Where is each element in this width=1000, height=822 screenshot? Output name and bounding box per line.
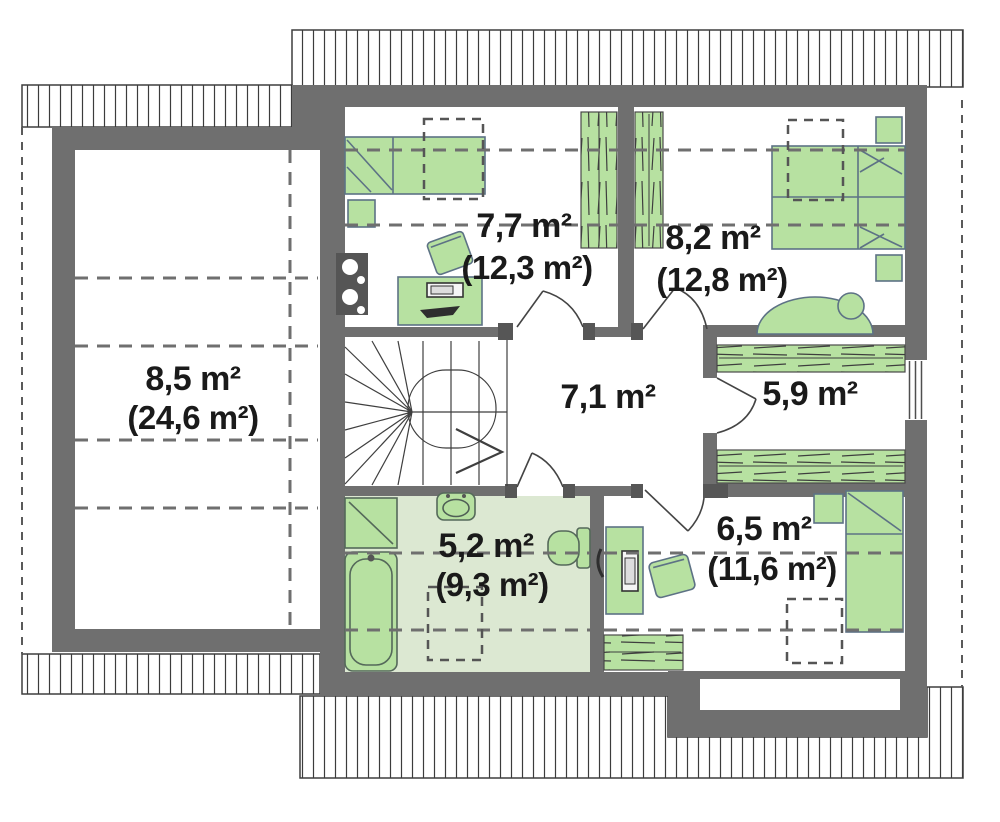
wall-attic-top [52, 127, 345, 150]
toilet [548, 528, 590, 568]
jamb [505, 484, 517, 498]
room-label: 5,2 m² [438, 527, 533, 565]
wall-bottom-left-section [320, 672, 692, 695]
room-label: (24,6 m²) [127, 399, 258, 436]
bottom-wall-niche [700, 679, 900, 710]
wardrobe-tall-right [635, 112, 663, 248]
nightstand [348, 200, 375, 227]
nightstand [876, 117, 902, 143]
bathtub-faucet [368, 555, 375, 562]
room-label: (11,6 m²) [707, 550, 836, 587]
nightstand [814, 494, 843, 523]
wardrobe-tall-left [581, 112, 617, 248]
jamb [563, 484, 575, 498]
wall-main-left [320, 85, 345, 695]
roof-hatch-band-top-left [22, 85, 292, 127]
wardrobe-band-top [717, 345, 905, 372]
room-label: 8,2 m² [665, 219, 760, 257]
room-label: 5,9 m² [762, 375, 857, 413]
jamb [631, 323, 643, 340]
wardrobe-band-bottom [717, 450, 905, 483]
bathtub [345, 552, 397, 671]
jamb [583, 323, 595, 340]
room-label: 6,5 m² [716, 510, 811, 548]
sink [437, 493, 475, 520]
wall-top [292, 85, 927, 107]
bed [345, 137, 485, 194]
roof-hatch-band-bottom-left [22, 654, 320, 694]
room-label: 8,5 m² [145, 360, 240, 398]
jamb [498, 323, 513, 340]
wall-bath-top [345, 486, 517, 496]
wall-partition-bedrooms [618, 107, 634, 330]
chimney [336, 253, 368, 315]
nightstand [876, 255, 902, 281]
wall-bath-right [590, 493, 604, 672]
floor-plan: 8,5 m² (24,6 m²) 7,7 m² (12,3 m²) 8,2 m²… [0, 0, 1000, 822]
room-label: (12,3 m²) [461, 249, 592, 286]
wall-attic-left [52, 127, 75, 652]
wall-attic-bottom [52, 629, 345, 652]
wardrobe-low [604, 635, 683, 670]
wall-closet-left-upper [703, 325, 717, 378]
room-label: 7,7 m² [476, 207, 571, 245]
jamb [631, 484, 643, 498]
window [905, 360, 927, 420]
room-label: (9,3 m²) [435, 566, 548, 603]
roof-hatch-band-top [292, 30, 963, 87]
wall-hall-top-1 [345, 327, 513, 337]
room-label: (12,8 m²) [656, 261, 787, 298]
room-label: 7,1 m² [560, 378, 655, 416]
side-table [838, 293, 864, 319]
jamb [703, 484, 728, 498]
